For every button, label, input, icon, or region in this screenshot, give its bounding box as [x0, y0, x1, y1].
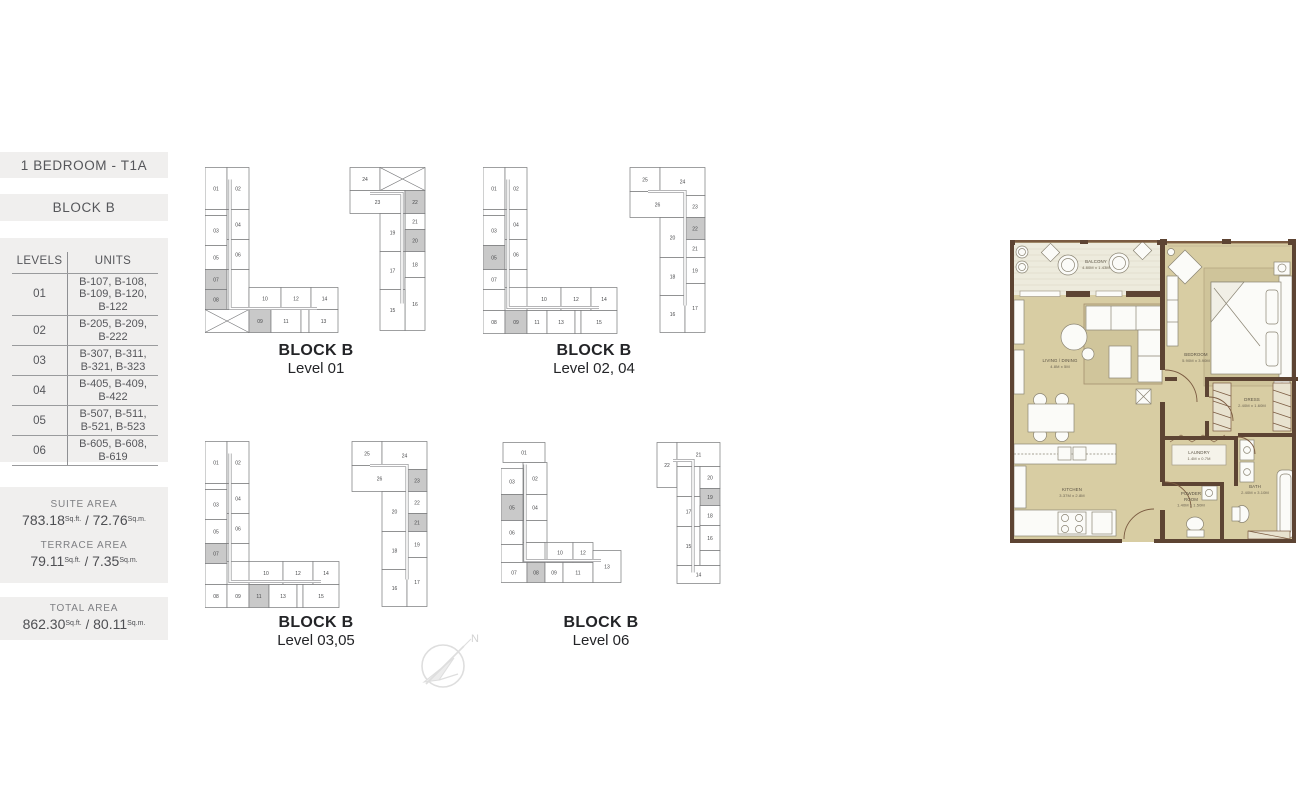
room-label: LAUNDRY1.4M x 0.7M: [1187, 450, 1210, 461]
unit-number: 13: [321, 319, 327, 325]
bed: [1211, 276, 1292, 380]
unit-number: 04: [235, 497, 241, 503]
shelf-unit: [1014, 350, 1024, 394]
units-cell: B-605, B-608, B-619: [68, 436, 158, 465]
unit-number: 12: [295, 571, 301, 577]
unit-number: 12: [573, 297, 579, 303]
unit-cell: [205, 210, 227, 216]
unit-number: 06: [235, 527, 241, 533]
unit-number: 13: [604, 565, 610, 571]
units-cell: B-307, B-311, B-321, B-323: [68, 346, 158, 375]
unit-cell: [523, 521, 547, 543]
unit-cell: [483, 210, 505, 216]
unit-number: 10: [541, 297, 547, 303]
unit-number: 25: [364, 452, 370, 458]
block-title-label: BLOCK B: [53, 200, 116, 215]
unit-number: 16: [707, 536, 713, 542]
total-area-value: 862.30Sq.ft. / 80.11Sq.m.: [0, 616, 168, 632]
unit-number: 26: [655, 203, 661, 209]
unit-number: 20: [707, 476, 713, 482]
unit-number: 14: [696, 573, 702, 579]
table-header-units: UNITS: [68, 252, 158, 273]
units-cell: B-507, B-511, B-521, B-523: [68, 406, 158, 435]
unit-cell: [501, 545, 523, 563]
unit-type-title: 1 BEDROOM - T1A: [0, 152, 168, 178]
unit-cell: [700, 551, 720, 566]
unit-number: 23: [692, 205, 698, 211]
unit-number: 09: [235, 594, 241, 600]
unit-number: 19: [707, 495, 713, 501]
unit-number: 21: [412, 220, 418, 226]
block-title: BLOCK B: [0, 194, 168, 221]
unit-number: 07: [491, 278, 497, 284]
units-cell: B-205, B-209, B-222: [68, 316, 158, 345]
unit-number: 05: [509, 506, 515, 512]
unit-number: 22: [664, 463, 670, 469]
unit-number: 14: [323, 571, 329, 577]
coffee-table: [1061, 324, 1087, 350]
unit-number: 15: [596, 320, 602, 326]
unit-cell: [483, 290, 505, 311]
block-diagram-level-01: 0102030405060708101214091113242322211920…: [205, 167, 427, 339]
total-area-panel: TOTAL AREA 862.30Sq.ft. / 80.11Sq.m.: [0, 597, 168, 640]
room-label: KITCHEN3.37M x 2.8M: [1059, 487, 1084, 498]
room-label: BEDROOM5.90M x 3.90M: [1182, 352, 1210, 363]
unit-number: 23: [375, 200, 381, 206]
unit-number: 05: [491, 256, 497, 262]
unit-number: 21: [696, 453, 702, 459]
units-cell: B-107, B-108, B-109, B-120, B-122: [68, 274, 158, 316]
floor-plan: BALCONY4.80M x 1.43MLIVING / DINING4.8M …: [1008, 238, 1298, 550]
unit-number: 15: [686, 544, 692, 550]
terrace-area-value: 79.11Sq.ft. / 7.35Sq.m.: [0, 553, 168, 569]
unit-number: 20: [412, 239, 418, 245]
table-row: 01B-107, B-108, B-109, B-120, B-122: [12, 273, 158, 316]
unit-number: 06: [235, 253, 241, 259]
unit-number: 22: [414, 501, 420, 507]
room-label: BALCONY4.80M x 1.43M: [1082, 259, 1110, 270]
unit-number: 21: [414, 521, 420, 527]
level-cell: 01: [12, 274, 68, 316]
unit-number: 07: [213, 552, 219, 558]
level-cell: 03: [12, 346, 68, 375]
table-row: 05B-507, B-511, B-521, B-523: [12, 405, 158, 435]
level-cell: 02: [12, 316, 68, 345]
unit-number: 17: [692, 306, 698, 312]
table-header-levels: LEVELS: [12, 252, 68, 273]
unit-number: 09: [257, 319, 263, 325]
unit-number: 01: [213, 461, 219, 467]
unit-number: 08: [491, 320, 497, 326]
unit-number: 19: [414, 543, 420, 549]
hall-hatch: [1136, 389, 1151, 404]
unit-number: 11: [256, 594, 261, 600]
unit-cell: [205, 564, 227, 585]
unit-number: 01: [521, 451, 527, 457]
unit-number: 06: [509, 531, 515, 537]
levels-units-table: LEVELS UNITS 01B-107, B-108, B-109, B-12…: [12, 252, 158, 466]
wardrobe-unit: [1167, 276, 1178, 346]
unit-number: 16: [670, 312, 676, 318]
table-row: 06B-605, B-608, B-619: [12, 435, 158, 466]
total-area-label: TOTAL AREA: [0, 603, 168, 614]
unit-cell: [297, 585, 303, 608]
level-cell: 05: [12, 406, 68, 435]
units-cell: B-405, B-409, B-422: [68, 376, 158, 405]
unit-number: 14: [601, 297, 607, 303]
unit-number: 07: [511, 571, 517, 577]
unit-number: 15: [318, 594, 324, 600]
unit-number: 09: [551, 571, 557, 577]
unit-number: 13: [280, 594, 286, 600]
unit-number: 10: [262, 297, 268, 303]
unit-number: 12: [293, 297, 299, 303]
level-cell: 06: [12, 436, 68, 465]
suite-area-label: SUITE AREA: [0, 499, 168, 510]
levels-units-panel: LEVELS UNITS 01B-107, B-108, B-109, B-12…: [0, 238, 168, 462]
unit-number: 04: [532, 506, 538, 512]
unit-number: 16: [412, 302, 418, 308]
unit-number: 18: [670, 275, 676, 281]
unit-number: 04: [513, 223, 519, 229]
caption-level-02-04: BLOCK B Level 02, 04: [483, 342, 705, 378]
unit-number: 08: [213, 298, 219, 304]
unit-number: 26: [377, 477, 383, 483]
unit-number: 19: [692, 269, 698, 275]
level-cell: 04: [12, 376, 68, 405]
unit-number: 17: [390, 269, 396, 275]
suite-area-value: 783.18Sq.ft. / 72.76Sq.m.: [0, 512, 168, 528]
balcony-door: [1020, 291, 1060, 297]
unit-number: 08: [213, 594, 219, 600]
unit-number: 13: [558, 320, 564, 326]
unit-number: 02: [532, 477, 538, 483]
unit-number: 21: [692, 247, 698, 253]
unit-number: 01: [491, 187, 497, 193]
unit-number: 02: [235, 187, 241, 193]
unit-number: 04: [235, 223, 241, 229]
unit-number: 05: [213, 530, 219, 536]
unit-number: 10: [557, 551, 563, 557]
unit-number: 06: [513, 253, 519, 259]
unit-number: 16: [392, 586, 398, 592]
unit-number: 12: [580, 551, 586, 557]
table-header-row: LEVELS UNITS: [12, 252, 158, 273]
unit-number: 20: [392, 510, 398, 516]
unit-number: 15: [390, 308, 396, 314]
terrace-area-label: TERRACE AREA: [0, 540, 168, 551]
total-area: TOTAL AREA 862.30Sq.ft. / 80.11Sq.m.: [0, 603, 168, 632]
unit-number: 14: [322, 297, 328, 303]
table-row: 02B-205, B-209, B-222: [12, 315, 158, 345]
decor-icon: [1168, 249, 1175, 256]
unit-number: 25: [642, 178, 648, 184]
unit-number: 05: [213, 256, 219, 262]
unit-number: 24: [362, 177, 368, 183]
unit-cell: [301, 310, 309, 333]
balcony-window: [1096, 291, 1122, 297]
terrace-area: TERRACE AREA 79.11Sq.ft. / 7.35Sq.m.: [0, 540, 168, 569]
unit-number: 17: [414, 580, 420, 586]
unit-number: 02: [513, 187, 519, 193]
unit-cell: [677, 467, 700, 497]
unit-number: 24: [680, 180, 686, 186]
unit-number: 20: [670, 236, 676, 242]
unit-cell: [205, 484, 227, 490]
compass-icon: N: [414, 630, 480, 699]
area-panel: SUITE AREA 783.18Sq.ft. / 72.76Sq.m. TER…: [0, 487, 168, 583]
caption-level-01: BLOCK B Level 01: [205, 342, 427, 378]
block-diagram-level-03-05: 0102030405060708101214091113152524262322…: [205, 441, 429, 613]
unit-number: 22: [692, 227, 698, 233]
unit-number: 11: [575, 571, 580, 577]
unit-number: 09: [513, 320, 519, 326]
unit-number: 02: [235, 461, 241, 467]
unit-number: 11: [534, 320, 539, 326]
caption-level-06: BLOCK B Level 06: [501, 614, 701, 650]
unit-number: 19: [390, 231, 396, 237]
unit-number: 23: [414, 479, 420, 485]
table-row: 04B-405, B-409, B-422: [12, 375, 158, 405]
table-row: 03B-307, B-311, B-321, B-323: [12, 345, 158, 375]
side-table: [1082, 348, 1094, 360]
unit-number: 08: [533, 571, 539, 577]
media-unit: [1014, 300, 1024, 344]
unit-number: 10: [263, 571, 269, 577]
unit-cell: [575, 311, 581, 334]
levels-units-rows: 01B-107, B-108, B-109, B-120, B-12202B-2…: [12, 273, 158, 467]
compass-north-label: N: [471, 633, 479, 645]
unit-number: 18: [707, 514, 713, 520]
unit-number: 03: [213, 503, 219, 509]
unit-number: 18: [392, 549, 398, 555]
block-diagram-level-06: 0102030405061012070809111322212019171815…: [501, 442, 721, 589]
block-diagram-level-02-04: 0102030405060708101214091113152524262322…: [483, 167, 707, 339]
unit-number: 01: [213, 187, 219, 193]
unit-number: 03: [213, 229, 219, 235]
unit-number: 18: [412, 263, 418, 269]
caption-level-03-05: BLOCK B Level 03,05: [205, 614, 427, 650]
page: { "sidebar": { "type_title": "1 BEDROOM …: [0, 0, 1300, 800]
unit-number: 07: [213, 278, 219, 284]
unit-number: 24: [402, 454, 408, 460]
unit-number: 11: [283, 319, 288, 325]
unit-number: 03: [509, 480, 515, 486]
unit-number: 22: [412, 200, 418, 206]
unit-number: 17: [686, 510, 692, 516]
unit-type-label: 1 BEDROOM - T1A: [21, 158, 148, 173]
unit-number: 03: [491, 229, 497, 235]
suite-area: SUITE AREA 783.18Sq.ft. / 72.76Sq.m.: [0, 499, 168, 528]
